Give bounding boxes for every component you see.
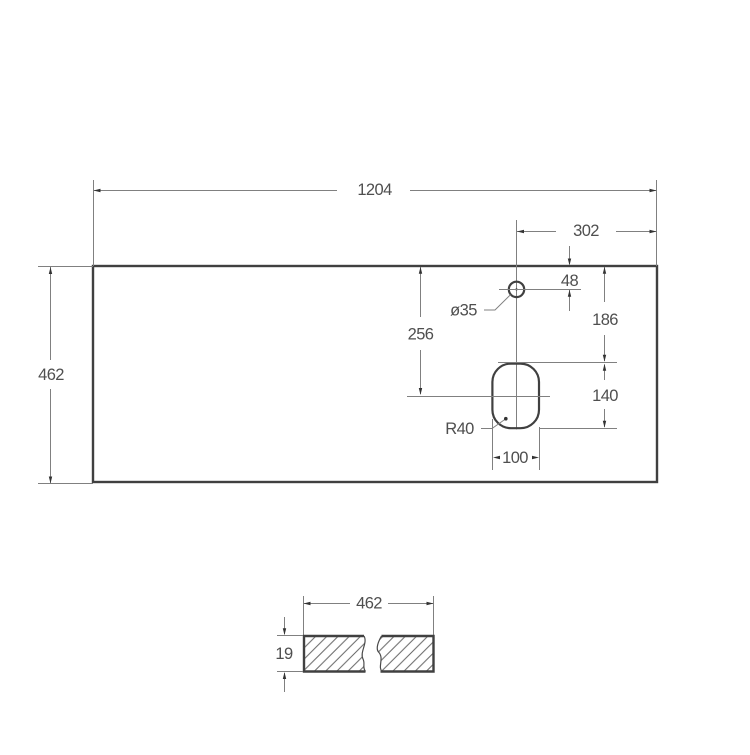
svg-text:186: 186 (592, 311, 618, 329)
svg-text:256: 256 (408, 326, 434, 344)
svg-text:1204: 1204 (357, 181, 392, 199)
svg-text:19: 19 (275, 645, 293, 663)
svg-text:48: 48 (561, 272, 579, 290)
svg-text:462: 462 (356, 595, 382, 613)
svg-text:100: 100 (502, 449, 528, 467)
svg-text:462: 462 (38, 366, 64, 384)
svg-text:302: 302 (573, 222, 599, 240)
svg-text:ø35: ø35 (450, 302, 477, 320)
svg-text:R40: R40 (445, 420, 474, 438)
svg-text:140: 140 (592, 387, 618, 405)
